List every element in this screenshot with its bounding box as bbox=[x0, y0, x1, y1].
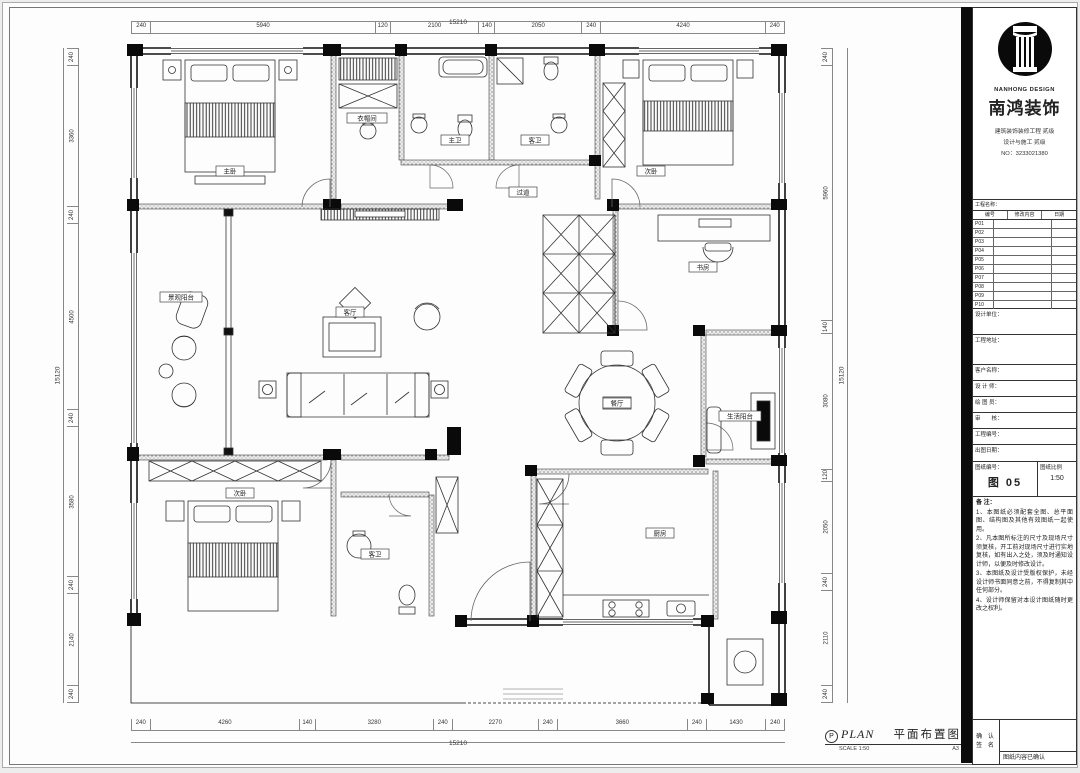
bathroom-guest-top-fixtures bbox=[497, 57, 567, 133]
room-label-bath-main: 主卫 bbox=[441, 135, 469, 145]
svg-text:衣帽间: 衣帽间 bbox=[357, 114, 377, 123]
utility-appliance bbox=[727, 639, 763, 685]
dim-segment: 4260 bbox=[150, 719, 299, 730]
svg-text:过道: 过道 bbox=[517, 188, 531, 197]
dim-segment: 140 bbox=[478, 22, 494, 33]
revision-row: P06 bbox=[973, 265, 1076, 274]
dim-segment: 2140 bbox=[67, 593, 78, 686]
dim-segment: 240 bbox=[67, 206, 78, 223]
note-item: 3、本图纸及设计受版权保护，未经设计师书面同意之前，不得复制其中任何部分。 bbox=[976, 570, 1073, 596]
svg-text:餐厅: 餐厅 bbox=[611, 399, 625, 408]
dim-segment: 240 bbox=[765, 22, 785, 33]
room-label-study: 书房 bbox=[689, 262, 717, 272]
dim-segment: 240 bbox=[821, 48, 832, 65]
titleblock-divider-bar bbox=[961, 7, 972, 763]
sheet-size: A3 bbox=[952, 746, 959, 752]
dim-segment: 2270 bbox=[452, 719, 538, 730]
dimension-left-segments: 2403360240450024035802402140240 bbox=[67, 48, 79, 703]
info-field: 审 核： bbox=[973, 413, 1076, 429]
confirm-signature-label: 确 认 签 名 bbox=[973, 720, 1000, 764]
svg-text:客厅: 客厅 bbox=[344, 308, 358, 317]
svg-text:次卧: 次卧 bbox=[645, 167, 659, 176]
dim-segment: 5960 bbox=[821, 65, 832, 320]
bed-second bbox=[603, 60, 753, 167]
revision-header: 编号 修改内容 日期 bbox=[973, 211, 1076, 220]
dim-segment: 240 bbox=[765, 719, 785, 730]
drawing-number-cell: 图纸编号： 图 05 bbox=[973, 462, 1038, 496]
bathroom-main-fixtures bbox=[411, 57, 487, 138]
dim-segment: 240 bbox=[131, 719, 150, 730]
plan-scale: SCALE 1:50 bbox=[839, 746, 869, 752]
svg-text:生活阳台: 生活阳台 bbox=[727, 412, 753, 421]
revision-row: P02 bbox=[973, 229, 1076, 238]
dim-segment: 3280 bbox=[315, 719, 433, 730]
note-item: 4、设计师保留对本设计图纸随时更改之权利。 bbox=[976, 597, 1073, 614]
scale-value: 1:50 bbox=[1040, 475, 1074, 482]
revision-row: P08 bbox=[973, 283, 1076, 292]
svg-text:书房: 书房 bbox=[697, 263, 710, 272]
dim-segment: 1430 bbox=[706, 719, 766, 730]
room-label-view-balcony: 景观阳台 bbox=[160, 292, 202, 302]
dim-segment: 240 bbox=[538, 719, 557, 730]
storage-cabinets bbox=[543, 215, 615, 333]
dim-segment: 240 bbox=[821, 685, 832, 703]
kitchen-furniture bbox=[537, 479, 709, 617]
bathroom-guest-bottom-fixtures bbox=[347, 531, 415, 614]
notes-title: 备 注： bbox=[976, 499, 1073, 508]
signature-area[interactable] bbox=[1000, 720, 1076, 751]
dim-segment: 3360 bbox=[67, 65, 78, 206]
dim-segment: 240 bbox=[67, 48, 78, 65]
dim-segment: 3660 bbox=[557, 719, 687, 730]
svg-text:客卫: 客卫 bbox=[369, 550, 383, 559]
dimension-bottom-total: 15210 bbox=[131, 732, 785, 743]
revision-row: P10 bbox=[973, 301, 1076, 309]
company-logo-icon bbox=[996, 20, 1054, 78]
dim-segment: 240 bbox=[67, 409, 78, 426]
company-logo-section: NANHONG DESIGN 南鸿装饰 建筑装饰装修工程 贰级 设计与施工 贰级… bbox=[973, 8, 1076, 200]
plan-caption: P PLAN 平面布置图 SCALE 1:50 A3 bbox=[825, 726, 961, 752]
dimension-bottom-segments: 24042601403280240227024036602401430240 bbox=[131, 719, 785, 731]
room-label-service-balcony: 生活阳台 bbox=[719, 411, 761, 421]
dimension-left-total: 15120 bbox=[53, 48, 64, 703]
dim-segment: 120 bbox=[821, 469, 832, 481]
bed-master bbox=[163, 60, 297, 184]
room-label-master: 主卧 bbox=[216, 166, 244, 176]
dim-segment: 140 bbox=[821, 320, 832, 333]
room-label-living: 客厅 bbox=[336, 307, 364, 317]
dim-segment: 240 bbox=[581, 22, 600, 33]
dim-segment: 3080 bbox=[821, 333, 832, 468]
outer-walls bbox=[131, 48, 785, 705]
bed-third bbox=[149, 461, 321, 611]
dim-segment: 240 bbox=[67, 685, 78, 703]
dimension-top-segments: 2405940120210014020502404240240 bbox=[131, 22, 785, 34]
note-item: 1、本图纸必须配套全图、总平面图、结构图及其他有效图纸一起使用。 bbox=[976, 509, 1073, 535]
dimension-right-total: 15120 bbox=[837, 48, 848, 703]
project-address-box: 工程地址： bbox=[973, 335, 1076, 365]
balcony-glazing bbox=[224, 209, 233, 455]
room-label-bath-bottom: 客卫 bbox=[361, 549, 389, 559]
drawing-sheet: 主卧 衣帽间 主卫 客卫 次卧 过道 书房 景观阳台 客厅 餐厅 生活阳台 次卧… bbox=[2, 2, 1078, 768]
dim-segment: 240 bbox=[131, 22, 150, 33]
notes-list: 1、本图纸必须配套全图、总平面图、结构图及其他有效图纸一起使用。2、凡本图所标注… bbox=[976, 509, 1073, 614]
entry-cabinet bbox=[436, 477, 458, 533]
revision-rows: P01P02P03P04P05P06P07P08P09P10 bbox=[973, 220, 1076, 309]
dim-segment: 3580 bbox=[67, 426, 78, 576]
svg-text:主卧: 主卧 bbox=[224, 167, 238, 176]
svg-text:次卧: 次卧 bbox=[234, 489, 248, 498]
info-field: 绘 图 员： bbox=[973, 397, 1076, 413]
dimension-right-segments: 2405960140308012020502402110240 bbox=[821, 48, 833, 703]
room-labels: 主卧 衣帽间 主卫 客卫 次卧 过道 书房 景观阳台 客厅 餐厅 生活阳台 次卧… bbox=[160, 113, 761, 559]
revision-row: P04 bbox=[973, 247, 1076, 256]
drawing-number: 图 05 bbox=[975, 474, 1035, 490]
design-unit-box: 设计单位： bbox=[973, 309, 1076, 335]
info-fields: 客户名称：设 计 师：绘 图 员：审 核：工程编号：出图日期： bbox=[973, 365, 1076, 462]
notes-section: 备 注： 1、本图纸必须配套全图、总平面图、结构图及其他有效图纸一起使用。2、凡… bbox=[973, 497, 1076, 720]
dim-segment: 240 bbox=[687, 719, 706, 730]
dim-segment: 4500 bbox=[67, 223, 78, 410]
plan-marker: P bbox=[825, 730, 838, 743]
revision-table: 工程名称： 编号 修改内容 日期 P01P02P03P04P05P06P07P0… bbox=[973, 200, 1076, 309]
confirm-section: 确 认 签 名 图纸内容已确认 bbox=[973, 720, 1076, 764]
info-field: 出图日期： bbox=[973, 445, 1076, 461]
company-name-cn: 南鸿装饰 bbox=[973, 94, 1076, 119]
note-item: 2、凡本图所标注的尺寸及现场尺寸须复核，开工前对现场尺寸进行实地复核，如有出入之… bbox=[976, 535, 1073, 569]
revision-row: P09 bbox=[973, 292, 1076, 301]
info-field: 设 计 师： bbox=[973, 381, 1076, 397]
room-label-bath-top: 客卫 bbox=[521, 135, 549, 145]
dim-segment: 120 bbox=[375, 22, 390, 33]
room-label-dining: 餐厅 bbox=[603, 398, 631, 408]
drawing-number-section: 图纸编号： 图 05 图纸比例 1:50 bbox=[973, 462, 1076, 497]
revision-row: P03 bbox=[973, 238, 1076, 247]
dim-segment: 2110 bbox=[821, 590, 832, 685]
dim-segment: 5940 bbox=[150, 22, 374, 33]
svg-text:厨房: 厨房 bbox=[654, 529, 667, 538]
revision-row: P07 bbox=[973, 274, 1076, 283]
room-label-kitchen: 厨房 bbox=[646, 528, 674, 538]
dim-segment: 240 bbox=[433, 719, 452, 730]
company-name-en: NANHONG DESIGN bbox=[973, 87, 1076, 93]
confirm-note: 图纸内容已确认 bbox=[1000, 751, 1076, 764]
study-furniture bbox=[658, 215, 770, 262]
revision-title: 工程名称： bbox=[973, 200, 1076, 211]
dim-segment: 2100 bbox=[390, 22, 479, 33]
info-field: 工程编号： bbox=[973, 429, 1076, 445]
plan-title-en: PLAN bbox=[841, 727, 874, 742]
balcony-lounge bbox=[159, 290, 210, 407]
company-cert-lines: 建筑装饰装修工程 贰级 设计与施工 贰级 NO：3233021380 bbox=[973, 127, 1076, 160]
svg-text:客卫: 客卫 bbox=[529, 136, 543, 145]
svg-text:景观阳台: 景观阳台 bbox=[168, 293, 194, 302]
wardrobe-cloak bbox=[339, 58, 397, 139]
plan-title-cn: 平面布置图 bbox=[894, 726, 962, 742]
revision-row: P05 bbox=[973, 256, 1076, 265]
room-label-bedroom2: 次卧 bbox=[637, 166, 665, 176]
dim-segment: 240 bbox=[67, 576, 78, 593]
svg-text:主卫: 主卫 bbox=[449, 136, 463, 145]
floor-plan: 主卧 衣帽间 主卫 客卫 次卧 过道 书房 景观阳台 客厅 餐厅 生活阳台 次卧… bbox=[3, 3, 963, 773]
dimension-top-total: 15210 bbox=[131, 11, 785, 22]
room-label-cloak: 衣帽间 bbox=[347, 113, 387, 123]
scale-cell: 图纸比例 1:50 bbox=[1038, 462, 1076, 496]
service-balcony-units bbox=[707, 393, 775, 453]
info-field: 客户名称： bbox=[973, 365, 1076, 381]
dim-segment: 4240 bbox=[600, 22, 764, 33]
dim-segment: 140 bbox=[299, 719, 314, 730]
room-label-hallway: 过道 bbox=[509, 187, 537, 197]
room-label-bedroom3: 次卧 bbox=[226, 488, 254, 498]
dim-segment: 2050 bbox=[494, 22, 581, 33]
title-block: NANHONG DESIGN 南鸿装饰 建筑装饰装修工程 贰级 设计与施工 贰级… bbox=[972, 7, 1077, 765]
revision-row: P01 bbox=[973, 220, 1076, 229]
dim-segment: 240 bbox=[821, 573, 832, 590]
dim-segment: 2050 bbox=[821, 481, 832, 573]
